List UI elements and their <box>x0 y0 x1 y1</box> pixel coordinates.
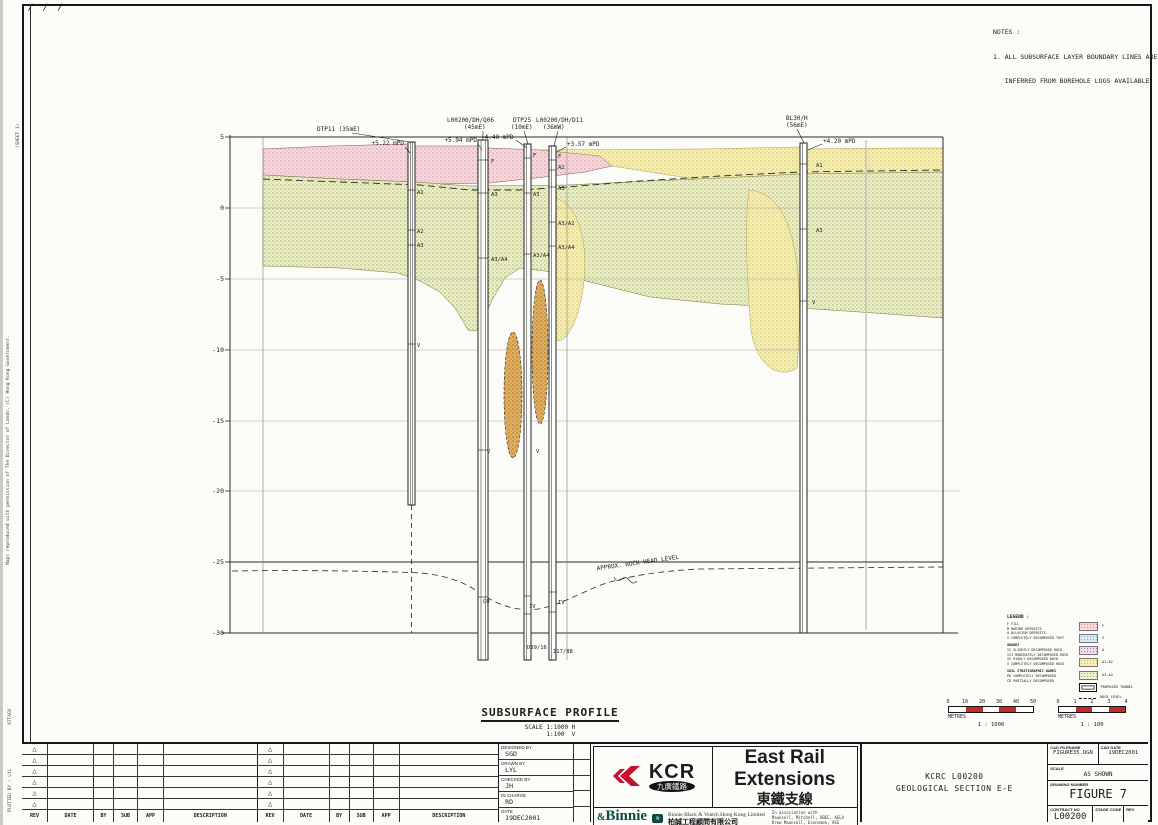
credit-row: IN CHARGE RD <box>499 792 573 808</box>
svg-text:A3/A2: A3/A2 <box>558 221 575 227</box>
svg-text:IV: IV <box>558 600 565 606</box>
svg-text:A3: A3 <box>491 192 498 198</box>
svg-text:L00200/DH/Q06: L00200/DH/Q06 <box>447 117 494 124</box>
date-header: DATE <box>284 810 330 822</box>
description-header: DESCRIPTION <box>400 810 499 822</box>
legend-line: V COMPLETELY DECOMPOSED ROCK <box>1007 662 1079 667</box>
project-title-en: East Rail Extensions <box>713 747 857 791</box>
legend-swatch-a3a4 <box>1079 671 1098 680</box>
svg-text:+5.94 mPD: +5.94 mPD <box>444 137 477 144</box>
consultant-name-zh: 柏誠工程顧問有限公司 <box>668 819 765 825</box>
kcr-wordmark: KCR <box>649 763 695 781</box>
revision-triangle-icon: △ <box>268 757 272 764</box>
credit-value: RD <box>505 798 571 806</box>
revision-triangle-icon: △ <box>32 790 36 797</box>
legend-swatch-label: F <box>1102 624 1104 629</box>
credits-side-cells <box>573 744 590 822</box>
revision-row: △ <box>22 777 257 788</box>
svg-text:-15: -15 <box>212 417 224 425</box>
stage-code-label: STAGE CODE <box>1093 806 1123 812</box>
kcr-logo-icon <box>611 765 645 789</box>
legend: LEGEND : F FILL M MARINE DEPOSITS A ALLU… <box>1007 616 1133 703</box>
rev-cell: REV <box>1124 806 1148 822</box>
revision-row: △ <box>258 766 499 777</box>
handwritten-scribble <box>614 577 637 583</box>
revision-row: △ <box>258 777 499 788</box>
borehole-name-labels: DTP11 (35mE) L00200/DH/Q06 (45mE) DTP25 … <box>317 115 808 133</box>
tick-label: 2 <box>1090 699 1093 705</box>
credit-row: DESIGNED BY SGD <box>499 744 573 760</box>
legend-swatch-tunnel <box>1079 683 1097 692</box>
legend-swatch-a1a2 <box>1079 658 1098 667</box>
credit-row: DRAWN BY LYL <box>499 760 573 776</box>
tick-label: 10 <box>962 699 968 705</box>
svg-text:A2: A2 <box>417 229 424 235</box>
svg-text:A3/A4: A3/A4 <box>558 245 575 251</box>
svg-text:(36mW): (36mW) <box>543 124 565 131</box>
revision-header-row: REV DATE BY SUB APP DESCRIPTION <box>22 810 257 822</box>
margin-plotted-by: PLOTTED BY : LYL <box>8 769 13 812</box>
tick-label: 30 <box>996 699 1002 705</box>
cad-filename-cell: CAD FILENAME FIGURE35.DGN <box>1048 744 1098 764</box>
svg-text:BL30/H: BL30/H <box>786 115 808 122</box>
scalebar-ticks: 0 1 2 3 4 <box>1058 699 1126 706</box>
svg-text:DTP11 (35mE): DTP11 (35mE) <box>317 126 360 133</box>
scalebar-bar <box>948 706 1034 713</box>
revision-triangle-icon: △ <box>268 746 272 753</box>
svg-text:APPROX. ROCK HEAD LEVEL: APPROX. ROCK HEAD LEVEL <box>596 554 680 573</box>
svg-text:F: F <box>533 153 536 159</box>
legend-swatch-label: A <box>1102 648 1104 653</box>
revision-row: △ <box>22 755 257 766</box>
revision-header-row: REV DATE BY SUB APP DESCRIPTION <box>258 810 499 822</box>
tick-label: 1 <box>1073 699 1076 705</box>
legend-swatch-label: V <box>1102 636 1104 641</box>
axis-ticks <box>225 137 230 633</box>
project-title-zh: 東鐵支線 <box>713 791 857 807</box>
association-note: In association with Maunsell, Mitchell, … <box>772 811 844 825</box>
revision-row: △ <box>258 788 499 799</box>
svg-text:(45mE): (45mE) <box>464 124 486 131</box>
rock-head-level-line <box>232 567 943 610</box>
section-title: SUBSURFACE PROFILE <box>481 706 618 722</box>
svg-text:-30: -30 <box>212 629 224 637</box>
doc-info-block: CAD FILENAME FIGURE35.DGN CAD DATE 19DEC… <box>1048 744 1148 822</box>
revision-triangle-icon: △ <box>268 801 272 808</box>
svg-text:IV: IV <box>529 604 536 610</box>
tick-label: 3 <box>1107 699 1110 705</box>
tick-label: 0 <box>946 699 949 705</box>
credit-value: SGD <box>505 750 571 758</box>
svg-text:0: 0 <box>220 204 224 212</box>
legend-swatches: F V A A1,A2 A3,A4 PROPOSED TUNNEL ROCK L… <box>1079 622 1133 703</box>
description-header: DESCRIPTION <box>164 810 257 822</box>
revision-table-1: △ △ △ △ △ △ REV DATE BY SUB APP DESCRIPT… <box>22 744 258 822</box>
scalebar-ratio: 1 : 100 <box>1058 722 1126 728</box>
svg-text:V: V <box>536 449 540 455</box>
section-scale-h: SCALE 1:1000 H <box>470 724 630 731</box>
revision-row: △ <box>22 766 257 777</box>
sand-lens-left <box>504 332 522 458</box>
credits-block: DESIGNED BY SGD DRAWN BY LYL CHECKED BY … <box>499 744 591 822</box>
legend-line: V COMPLETELY DECOMPOSED TUFF <box>1007 636 1079 641</box>
svg-text:A3: A3 <box>417 243 424 249</box>
company-block: KCR 九廣鐵路 East Rail Extensions 東鐵支線 &Binn… <box>591 744 861 822</box>
section-scale-v: 1:100 V <box>470 731 630 738</box>
credit-value: JH <box>505 782 571 790</box>
revision-row: △ <box>22 799 257 810</box>
drawing-title-line2: GEOLOGICAL SECTION E-E <box>896 783 1013 795</box>
svg-text:A1: A1 <box>816 163 823 169</box>
contract-cell: CONTRACT NO L00200 <box>1048 806 1093 822</box>
rev-label: REV <box>1124 806 1148 812</box>
revision-row: △ <box>22 744 257 755</box>
binnie-name: Binnie <box>605 808 647 824</box>
scale-cell: SCALE AS SHOWN <box>1048 765 1148 781</box>
tick-label: 4 <box>1124 699 1127 705</box>
revision-triangle-icon: △ <box>268 779 272 786</box>
rev-header: REV <box>258 810 284 822</box>
scalebar-ticks: 0 10 20 30 40 50 <box>948 699 1034 706</box>
revision-row: △ <box>258 799 499 810</box>
svg-text:D89/16: D89/16 <box>527 645 547 651</box>
cad-date-cell: CAD DATE 19DEC2001 <box>1099 744 1148 764</box>
scalebar-unit: METRES <box>1058 714 1076 720</box>
scale-value: AS SHOWN <box>1048 771 1148 778</box>
svg-text:V: V <box>487 449 491 455</box>
assoc-line: Drew Maunsell, Economee, ASG <box>772 821 844 825</box>
svg-text:-20: -20 <box>212 487 224 495</box>
legend-swatch-marine <box>1079 634 1098 643</box>
revision-triangle-icon: △ <box>32 779 36 786</box>
tick-label: 40 <box>1013 699 1019 705</box>
credit-row: CHECKED BY JH <box>499 776 573 792</box>
svg-text:(56mE): (56mE) <box>786 122 808 129</box>
svg-text:(10mE): (10mE) <box>511 124 533 131</box>
svg-text:A1: A1 <box>417 190 424 196</box>
svg-text:+5.22 mPD: +5.22 mPD <box>371 140 404 147</box>
revision-row: △ <box>258 744 499 755</box>
section-title-block: SUBSURFACE PROFILE SCALE 1:1000 H 1:100 … <box>470 701 630 738</box>
svg-text:117/88: 117/88 <box>553 649 573 655</box>
scalebar-ratio: 1 : 1000 <box>948 722 1034 728</box>
tick-label: 20 <box>979 699 985 705</box>
credit-value: LYL <box>505 766 571 774</box>
binnie-logo-text: &Binnie <box>597 809 647 825</box>
revision-triangle-icon: △ <box>32 757 36 764</box>
revision-table-2: △ △ △ △ △ △ REV DATE BY SUB APP DESCRIPT… <box>258 744 500 822</box>
scalebar-100: 0 1 2 3 4 METRES 1 : 100 <box>1058 699 1126 728</box>
svg-text:+4.40 mPD: +4.40 mPD <box>481 134 514 141</box>
svg-text:DTP25: DTP25 <box>513 117 531 124</box>
scalebar-1000: 0 10 20 30 40 50 METRES 1 : 1000 <box>948 699 1034 728</box>
svg-text:A3: A3 <box>558 186 565 192</box>
svg-text:F: F <box>491 159 494 165</box>
legend-line: CD PARTIALLY DECOMPOSED <box>1007 679 1079 684</box>
drawing-number-cell: DRAWING NUMBER FIGURE 7 <box>1048 781 1148 806</box>
legend-swatch-fill <box>1079 622 1098 631</box>
scalebar-bar <box>1058 706 1126 713</box>
svg-text:A3: A3 <box>533 192 540 198</box>
revision-row: △ <box>22 788 257 799</box>
svg-text:-10: -10 <box>212 346 224 354</box>
legend-title: LEGEND : <box>1007 616 1133 621</box>
credit-row: DATE 19DEC2001 <box>499 808 573 823</box>
svg-text:A3/A4: A3/A4 <box>533 253 550 259</box>
revision-row: △ <box>258 755 499 766</box>
app-header: APP <box>374 810 400 822</box>
drawing-number-value: FIGURE 7 <box>1048 787 1148 801</box>
svg-text:L00200/DH/D11: L00200/DH/D11 <box>536 117 583 124</box>
elevation-axis-labels: 5 0 -5 -10 -15 -20 -25 -30 <box>212 133 224 637</box>
svg-text:A2: A2 <box>558 165 565 171</box>
by-header: BY <box>94 810 114 822</box>
scalebar-unit: METRES <box>948 714 966 720</box>
legend-descriptions: F FILL M MARINE DEPOSITS A ALLUVIUM DEPO… <box>1007 622 1079 703</box>
contract-value: L00200 <box>1048 812 1092 822</box>
by-header: BY <box>330 810 350 822</box>
legend-swatch-label: A1,A2 <box>1102 660 1113 665</box>
sub-header: SUB <box>350 810 374 822</box>
cad-date-value: 19DEC2001 <box>1099 750 1148 756</box>
binnie-square-icon: ≋ <box>652 814 663 823</box>
rev-header: REV <box>22 810 48 822</box>
stratum-fill-alluvium-green <box>263 172 943 331</box>
svg-text:-25: -25 <box>212 558 224 566</box>
svg-text:V: V <box>417 343 421 349</box>
svg-text:5: 5 <box>220 133 224 141</box>
revision-triangle-icon: △ <box>32 746 36 753</box>
sub-header: SUB <box>114 810 138 822</box>
svg-text:+4.20 mPD: +4.20 mPD <box>823 138 856 145</box>
cad-filename-value: FIGURE35.DGN <box>1048 750 1097 756</box>
sand-lens-right <box>532 280 548 424</box>
stage-code-cell: STAGE CODE <box>1093 806 1124 822</box>
drawing-title-line1: KCRC L00200 <box>925 771 983 783</box>
rock-head-annotation: APPROX. ROCK HEAD LEVEL <box>596 554 680 573</box>
legend-swatch-label: A3,A4 <box>1102 673 1113 678</box>
legend-swatch-alluvium <box>1079 646 1098 655</box>
legend-swatch-label: PROPOSED TUNNEL <box>1101 685 1133 690</box>
date-header: DATE <box>48 810 94 822</box>
credit-value: 19DEC2001 <box>505 814 571 822</box>
svg-text:-5: -5 <box>216 275 224 283</box>
svg-text:C0: C0 <box>483 599 490 605</box>
app-header: APP <box>138 810 164 822</box>
geological-section-svg: 5 0 -5 -10 -15 -20 -25 -30 APPROX. ROCK … <box>0 0 1158 745</box>
revision-triangle-icon: △ <box>32 768 36 775</box>
svg-text:+3.57 mPD: +3.57 mPD <box>567 141 600 148</box>
revision-triangle-icon: △ <box>268 790 272 797</box>
drawing-title-block: KCRC L00200 GEOLOGICAL SECTION E-E <box>861 744 1049 822</box>
svg-text:A3/A4: A3/A4 <box>491 257 508 263</box>
revision-triangle-icon: △ <box>32 801 36 808</box>
svg-text:A3: A3 <box>816 228 823 234</box>
revision-triangle-icon: △ <box>268 768 272 775</box>
title-strip: △ △ △ △ △ △ REV DATE BY SUB APP DESCRIPT… <box>22 742 1148 822</box>
svg-text:F: F <box>558 154 561 160</box>
tick-label: 0 <box>1056 699 1059 705</box>
tick-label: 50 <box>1030 699 1036 705</box>
drawing-sheet: / / / (SHEET 1) Maps reproduced with per… <box>0 0 1158 825</box>
